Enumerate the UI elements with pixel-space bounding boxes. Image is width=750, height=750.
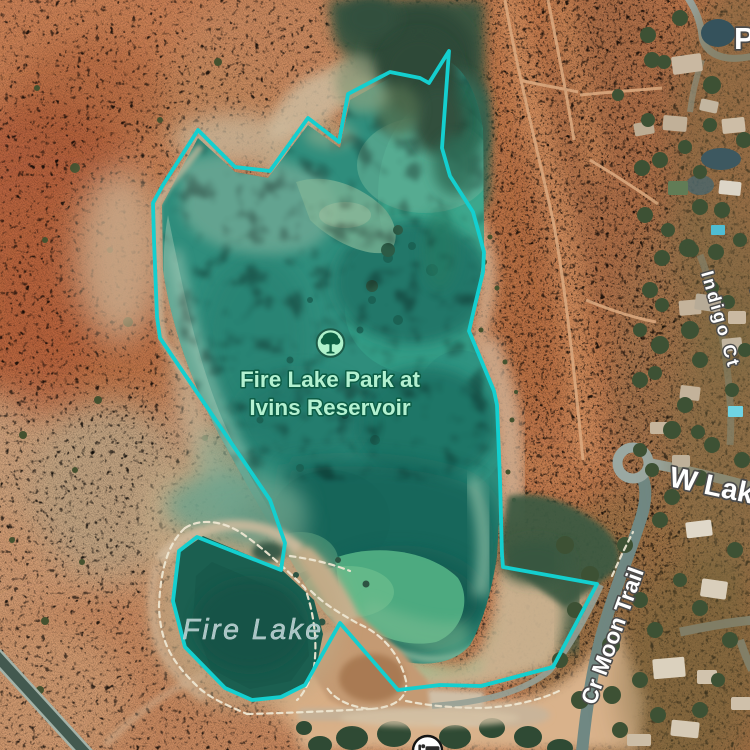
svg-text:P: P (734, 21, 750, 56)
svg-text:Fire Lake: Fire Lake (182, 614, 323, 646)
svg-text:Ivins Reservoir: Ivins Reservoir (249, 395, 411, 420)
svg-text:Fire Lake Park at: Fire Lake Park at (240, 367, 421, 392)
